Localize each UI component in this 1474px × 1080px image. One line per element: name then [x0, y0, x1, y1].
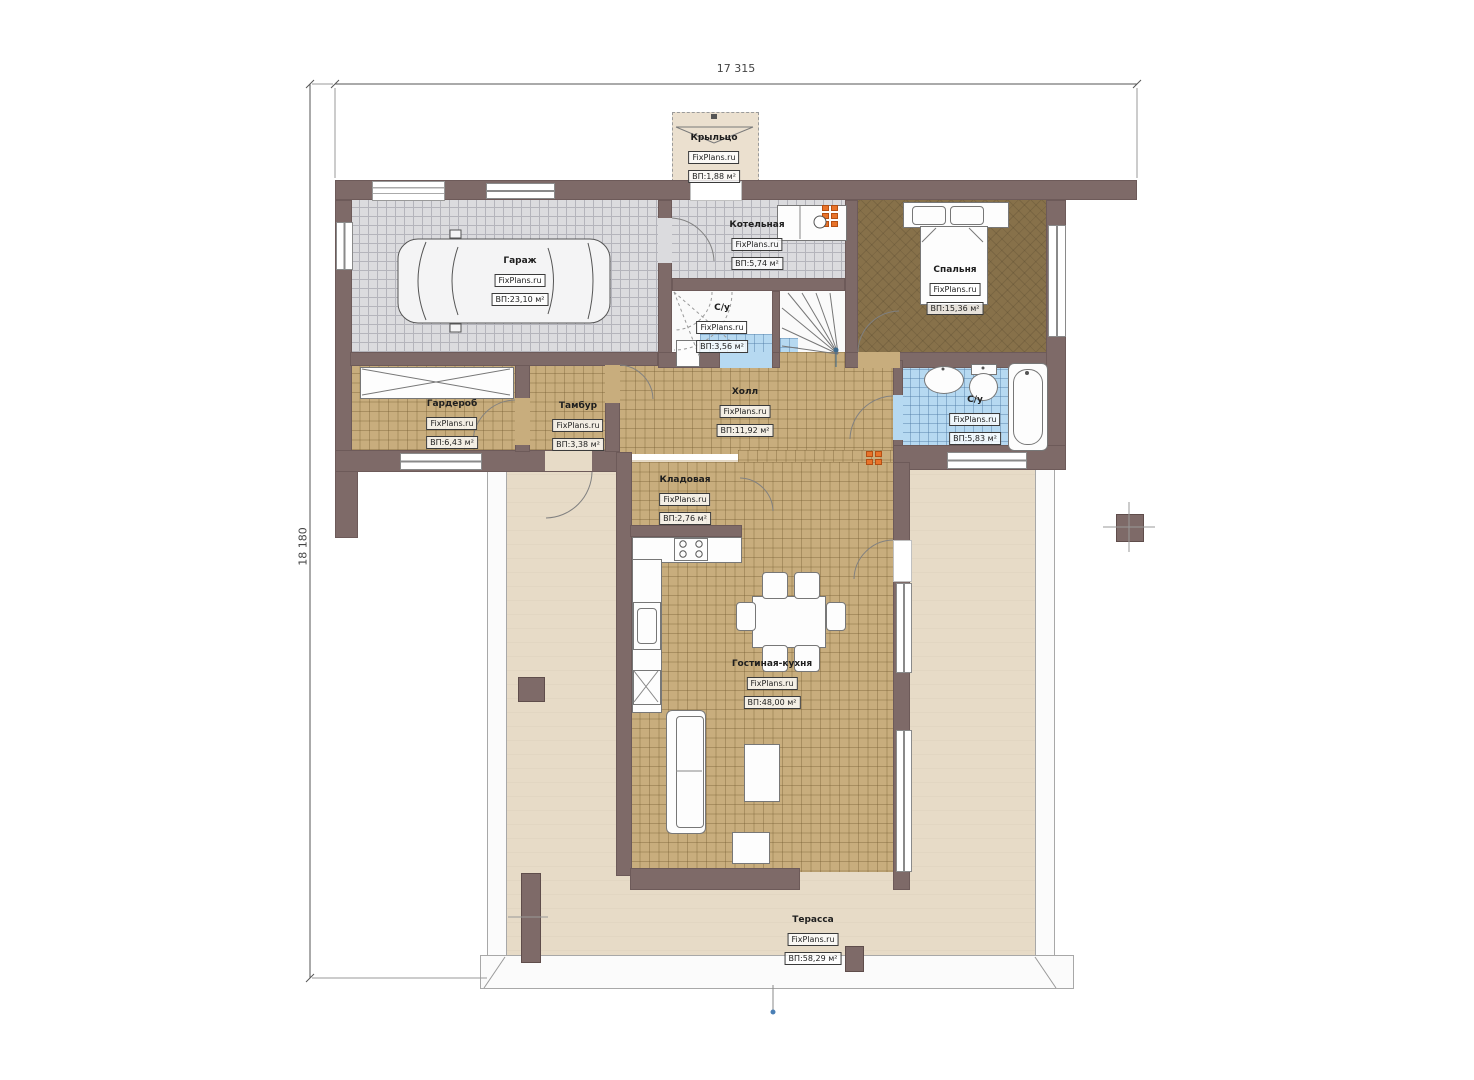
- room-area: ВП:6,43 м²: [426, 436, 478, 449]
- room-area: ВП:23,10 м²: [492, 293, 549, 306]
- room-name: С/у: [696, 303, 748, 314]
- radiator-cell: [875, 459, 882, 465]
- room-brand: FixPlans.ru: [787, 933, 838, 946]
- room-brand: FixPlans.ru: [746, 677, 797, 690]
- room-area: ВП:11,92 м²: [717, 424, 774, 437]
- room-name: Терасса: [785, 915, 842, 926]
- room-area: ВП:58,29 м²: [785, 952, 842, 965]
- bathtub-inner: [1013, 369, 1043, 445]
- garage-gate: [372, 181, 445, 201]
- window: [400, 453, 482, 470]
- room-name: Кладовая: [659, 475, 711, 486]
- column-post: [1116, 514, 1144, 542]
- room-area: ВП:48,00 м²: [744, 696, 801, 709]
- wall-segment: [616, 452, 632, 876]
- window: [336, 222, 353, 270]
- pillow: [912, 206, 946, 225]
- radiator-cell: [822, 205, 829, 211]
- door-opening: [658, 218, 672, 263]
- entrance-door-opening: [690, 181, 742, 201]
- radiator-cell: [822, 213, 829, 219]
- radiator-cell: [866, 451, 873, 457]
- tv-stand: [732, 832, 770, 864]
- room-area: ВП:5,83 м²: [949, 432, 1001, 445]
- room-area: ВП:5,74 м²: [731, 257, 783, 270]
- dishwasher: [633, 670, 661, 705]
- chair: [736, 602, 756, 631]
- room-label-hall: Холл FixPlans.ru ВП:11,92 м²: [717, 387, 774, 437]
- room-name: Крыльцо: [688, 133, 740, 144]
- room-brand: FixPlans.ru: [696, 321, 747, 334]
- room-label-bedroom: Спальня FixPlans.ru ВП:15,36 м²: [927, 265, 984, 315]
- dining-table: [752, 596, 826, 648]
- column-post: [521, 873, 541, 963]
- coffee-table: [744, 744, 780, 802]
- radiator-cell: [875, 451, 882, 457]
- room-label-pantry: Кладовая FixPlans.ru ВП:2,76 м²: [659, 475, 711, 525]
- room-name: Гостиная-кухня: [732, 659, 812, 670]
- radiator: [822, 205, 838, 227]
- room-label-boiler: Котельная FixPlans.ru ВП:5,74 м²: [729, 220, 784, 270]
- room-name: Спальня: [927, 265, 984, 276]
- radiator-cell: [822, 221, 829, 227]
- room-label-garage: Гараж FixPlans.ru ВП:23,10 м²: [492, 256, 549, 306]
- room-name: Котельная: [729, 220, 784, 231]
- sliding-door: [896, 730, 912, 872]
- radiator: [866, 451, 882, 465]
- room-label-main-bathroom: С/у FixPlans.ru ВП:5,83 м²: [949, 395, 1001, 445]
- terrace-railing-right: [1035, 452, 1055, 977]
- terrace-railing-bottom: [480, 955, 1074, 989]
- room-area: ВП:15,36 м²: [927, 302, 984, 315]
- room-area: ВП:2,76 м²: [659, 512, 711, 525]
- wall-segment: [630, 525, 742, 537]
- room-label-small-bathroom: С/у FixPlans.ru ВП:3,56 м²: [696, 303, 748, 353]
- room-brand: FixPlans.ru: [949, 413, 1000, 426]
- terrace-railing-left: [487, 460, 507, 977]
- radiator-cell: [831, 205, 838, 211]
- floor-plan: 17 315 18 180 Крыльцо FixPlans.ru ВП:1,8…: [0, 0, 1474, 1080]
- radiator-cell: [866, 459, 873, 465]
- window: [486, 183, 555, 199]
- door-opening: [893, 540, 912, 582]
- room-brand: FixPlans.ru: [552, 419, 603, 432]
- room-label-terrace: Терасса FixPlans.ru ВП:58,29 м²: [785, 915, 842, 965]
- room-name: Гардероб: [426, 399, 478, 410]
- column-post: [845, 946, 864, 972]
- room-brand: FixPlans.ru: [494, 274, 545, 287]
- dimension-height-label: 18 180: [297, 511, 310, 583]
- door-opening: [893, 395, 903, 440]
- column-post: [518, 677, 545, 702]
- chair: [762, 572, 788, 599]
- window: [947, 452, 1027, 469]
- wall-segment: [672, 278, 845, 291]
- pillow: [950, 206, 984, 225]
- room-area: ВП:3,38 м²: [552, 438, 604, 451]
- room-brand: FixPlans.ru: [426, 417, 477, 430]
- wall-segment: [630, 868, 800, 890]
- room-brand: FixPlans.ru: [731, 238, 782, 251]
- room-brand: FixPlans.ru: [929, 283, 980, 296]
- sofa-seat: [676, 716, 704, 828]
- chair: [826, 602, 846, 631]
- room-label-vestibule: Тамбур FixPlans.ru ВП:3,38 м²: [552, 401, 604, 451]
- room-label-wardrobe: Гардероб FixPlans.ru ВП:6,43 м²: [426, 399, 478, 449]
- room-brand: FixPlans.ru: [719, 405, 770, 418]
- door-opening: [515, 398, 530, 445]
- radiator-cell: [831, 213, 838, 219]
- room-label-living-kitchen: Гостиная-кухня FixPlans.ru ВП:48,00 м²: [732, 659, 812, 709]
- dimension-width-label: 17 315: [700, 62, 772, 75]
- window: [1048, 225, 1066, 337]
- room-name: Тамбур: [552, 401, 604, 412]
- room-label-porch: Крыльцо FixPlans.ru ВП:1,88 м²: [688, 133, 740, 183]
- wall-segment: [772, 352, 780, 368]
- room-brand: FixPlans.ru: [688, 151, 739, 164]
- door-opening: [605, 365, 620, 403]
- wall-segment: [350, 352, 658, 366]
- bathroom-sink: [924, 366, 964, 394]
- kitchen-sink-basin: [637, 608, 657, 644]
- room-brand: FixPlans.ru: [659, 493, 710, 506]
- door-opening: [720, 352, 772, 368]
- room-area: ВП:1,88 м²: [688, 170, 740, 183]
- window: [896, 583, 912, 673]
- stove: [674, 538, 708, 561]
- chair: [794, 572, 820, 599]
- room-name: Гараж: [492, 256, 549, 267]
- wardrobe-shelf: [360, 367, 514, 399]
- door-opening: [858, 352, 900, 368]
- door-opening: [545, 451, 592, 471]
- room-area: ВП:3,56 м²: [696, 340, 748, 353]
- radiator-cell: [831, 221, 838, 227]
- room-name: Холл: [717, 387, 774, 398]
- room-name: С/у: [949, 395, 1001, 406]
